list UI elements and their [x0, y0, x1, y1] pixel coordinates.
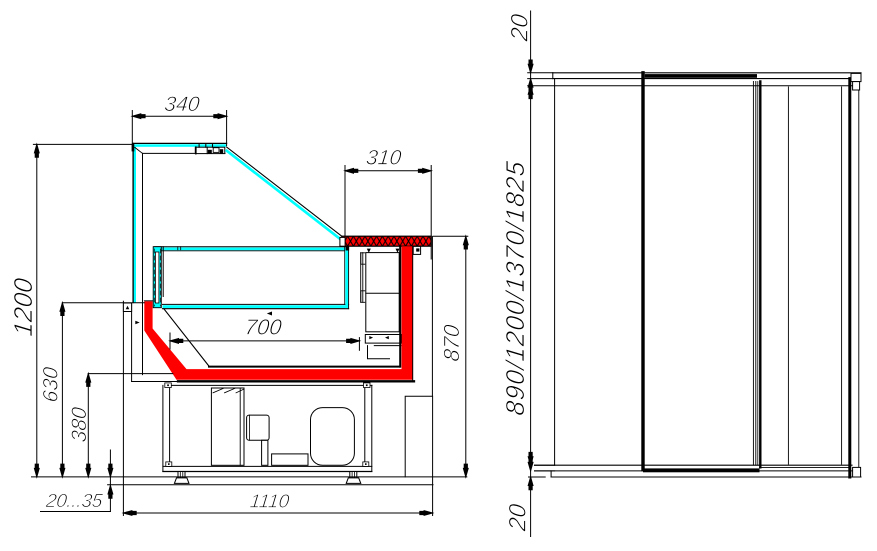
- svg-text:870: 870: [439, 323, 464, 363]
- svg-text:1110: 1110: [249, 491, 291, 512]
- svg-text:890/1200/1370/1825: 890/1200/1370/1825: [500, 159, 530, 417]
- svg-text:310: 310: [365, 146, 403, 169]
- svg-text:20: 20: [505, 502, 532, 533]
- svg-text:1200: 1200: [8, 276, 38, 337]
- svg-text:20...35: 20...35: [44, 491, 104, 512]
- svg-text:630: 630: [40, 366, 63, 404]
- svg-text:380: 380: [68, 406, 91, 444]
- svg-text:20: 20: [507, 12, 534, 43]
- svg-text:700: 700: [244, 315, 284, 340]
- svg-text:340: 340: [163, 93, 201, 116]
